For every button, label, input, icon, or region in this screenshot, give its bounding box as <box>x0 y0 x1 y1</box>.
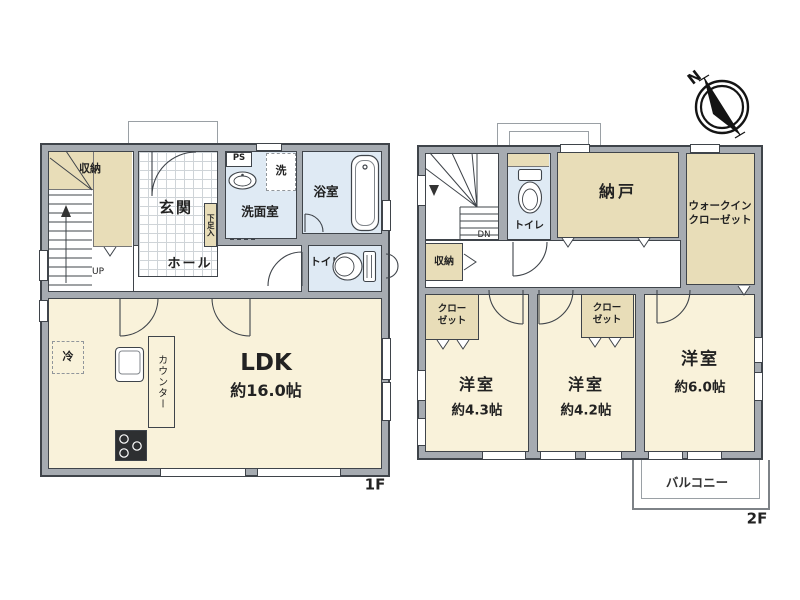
label-closet1-line2: ゼット <box>438 317 467 328</box>
label-wic-line2: クローゼット <box>689 215 752 227</box>
north-compass-icon: N <box>684 66 748 138</box>
label-hall: ホール <box>167 258 212 273</box>
window <box>257 468 341 477</box>
window <box>585 451 622 460</box>
label-balcony: バルコニー <box>666 476 728 490</box>
label-bedroom1-size: 約4.3帖 <box>452 403 503 418</box>
window <box>754 337 763 363</box>
label-bedroom1: 洋室 <box>459 376 495 394</box>
label-shoe-cabinet: 下足入 <box>206 214 214 237</box>
label-closet2-line1: クロー <box>593 304 622 315</box>
toilet-2f-counter <box>508 154 549 167</box>
label-closet2-line2: ゼット <box>593 316 622 327</box>
label-toilet-2f: トイレ <box>514 220 544 231</box>
window <box>39 300 48 322</box>
label-storage-2f: 収納 <box>434 256 454 267</box>
window <box>382 338 391 380</box>
room-hall-2f <box>425 240 681 288</box>
window <box>39 250 48 281</box>
window <box>687 451 722 460</box>
window <box>482 451 526 460</box>
window <box>540 451 576 460</box>
label-floor2: 2F <box>747 511 768 528</box>
label-storage-1f: 収納 <box>79 163 101 175</box>
room-ldk <box>48 298 382 469</box>
label-closet1-line1: クロー <box>438 305 467 316</box>
label-bedroom3: 洋室 <box>681 350 719 369</box>
label-entrance: 玄関 <box>159 200 193 217</box>
label-toilet-1f: トイレ <box>310 257 342 269</box>
label-bedroom3-size: 約6.0帖 <box>675 380 726 395</box>
label-ldk: LDK <box>240 351 292 377</box>
label-bedroom2-size: 約4.2帖 <box>561 403 612 418</box>
label-bedroom2: 洋室 <box>568 376 604 394</box>
window <box>648 451 683 460</box>
window <box>754 372 763 401</box>
window <box>256 143 282 151</box>
room-bedroom3 <box>644 294 755 452</box>
window <box>417 175 426 206</box>
label-up: UP <box>92 267 104 277</box>
label-wic-line1: ウォークイン <box>689 201 752 213</box>
window <box>560 144 590 153</box>
label-dn: DN <box>478 231 491 241</box>
label-washer: 洗 <box>276 165 287 177</box>
label-counter: カウンター <box>155 355 166 410</box>
window <box>417 370 426 401</box>
label-bathroom: 浴室 <box>313 185 338 199</box>
window <box>382 200 391 231</box>
label-floor1: 1F <box>365 477 386 494</box>
window <box>160 468 246 477</box>
label-storage-room: 納戸 <box>599 183 637 201</box>
label-washroom: 洗面室 <box>241 205 279 219</box>
label-fridge: 冷 <box>63 351 74 363</box>
floorplan-canvas: 収納 UP 玄関 下足入 PS 洗 洗面室 浴室 ホール トイレ LDK 約16… <box>0 0 800 600</box>
north-label: N <box>684 66 705 88</box>
window <box>690 144 720 153</box>
window <box>382 382 391 421</box>
window <box>417 418 426 446</box>
room-stairs-2f <box>425 153 499 240</box>
label-ldk-size: 約16.0帖 <box>230 382 301 400</box>
label-ps: PS <box>233 154 245 164</box>
